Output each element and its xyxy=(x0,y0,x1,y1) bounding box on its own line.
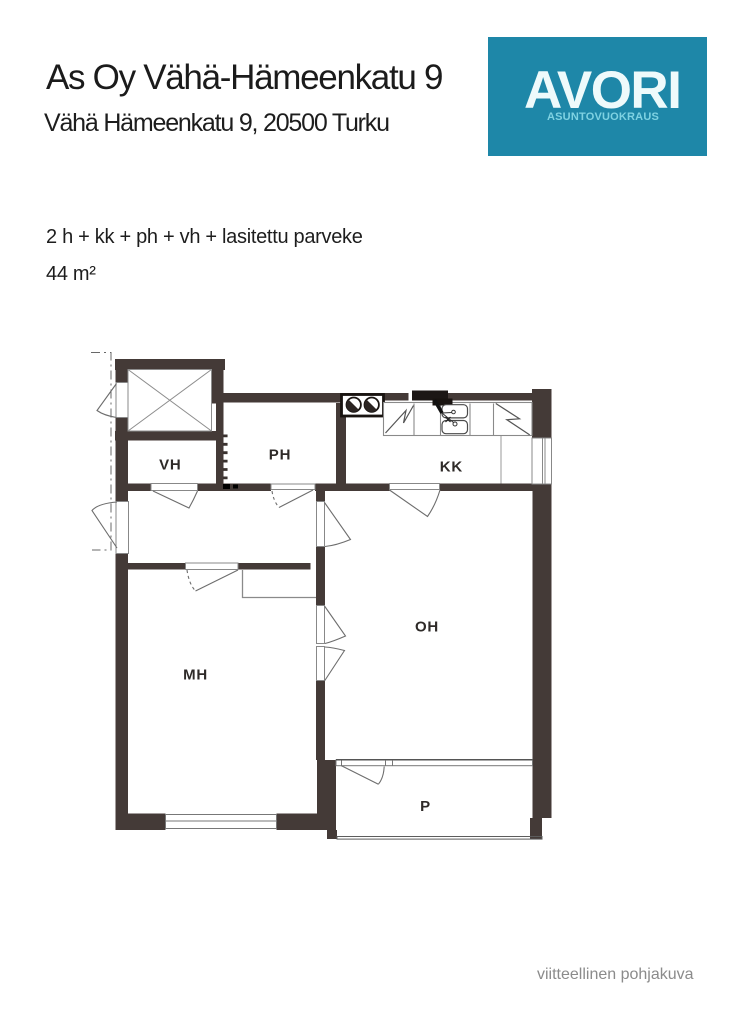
svg-text:PH: PH xyxy=(269,447,291,464)
svg-text:P: P xyxy=(420,798,431,815)
svg-text:VH: VH xyxy=(159,457,181,474)
svg-text:OH: OH xyxy=(415,619,439,636)
svg-text:MH: MH xyxy=(183,667,208,684)
svg-text:KK: KK xyxy=(440,459,463,476)
